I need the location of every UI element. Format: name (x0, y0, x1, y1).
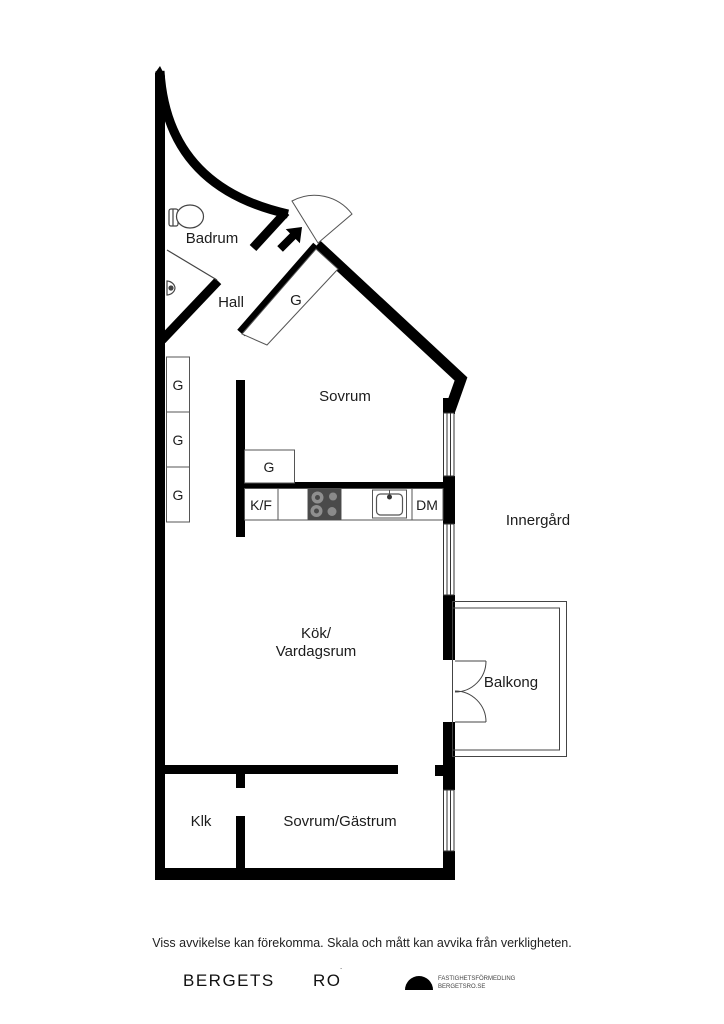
entrance-door-swing (292, 195, 352, 243)
label-closet-1: G (173, 377, 184, 393)
dome-logo-icon (405, 976, 433, 990)
bathroom-door-leaf (167, 250, 217, 280)
footer: Viss avvikelse kan förekomma. Skala och … (152, 936, 571, 990)
brand-mark: ˙ (340, 967, 343, 977)
klk-partition-upper (236, 774, 245, 788)
sink-unit-icon (373, 490, 407, 518)
guestroom-top-wall (160, 765, 398, 774)
label-closet-2: G (173, 432, 184, 448)
stove-icon (308, 489, 341, 521)
brand-ro: RO (313, 971, 342, 990)
label-sovrum: Sovrum (319, 388, 371, 405)
curved-wall (160, 71, 288, 214)
toilet-icon (169, 205, 204, 228)
label-hall-closet: G (290, 292, 302, 309)
kitchen-side-wall (236, 380, 245, 537)
sink-icon (167, 281, 175, 295)
label-hall: Hall (218, 294, 244, 311)
window-sovrum (444, 413, 455, 476)
logo-text-2: BERGETSRO.SE (438, 984, 485, 990)
closets (167, 249, 339, 522)
exterior-walls (155, 66, 461, 880)
label-kitchen-living-2: Vardagsrum (276, 643, 357, 660)
floorplan-drawing: Badrum Hall G Sovrum G G G G K/F DM Inne… (0, 0, 724, 1024)
balcony-french-doors (455, 661, 486, 722)
label-closet-3: G (173, 487, 184, 503)
label-courtyard: Innergård (506, 512, 570, 529)
bathroom-fixtures (167, 205, 217, 295)
label-walkin-closet: Klk (191, 813, 212, 830)
disclaimer-text: Viss avvikelse kan förekomma. Skala och … (152, 936, 571, 950)
window-guestroom (444, 790, 455, 851)
label-kitchen-closet: G (264, 459, 275, 475)
label-guest-room: Sovrum/Gästrum (283, 813, 396, 830)
kitchen-counter (245, 489, 444, 521)
bottom-wall (155, 868, 455, 880)
label-fridge-freezer: K/F (250, 497, 272, 513)
klk-partition-lower (236, 816, 245, 868)
window-kitchen (444, 524, 455, 595)
label-kitchen-living-1: Kök/ (301, 625, 332, 642)
diagonal-outer-wall (317, 245, 461, 410)
brand-bergets: BERGETS (183, 971, 275, 990)
label-badrum: Badrum (186, 230, 239, 247)
floorplan-page: Badrum Hall G Sovrum G G G G K/F DM Inne… (0, 0, 724, 1024)
left-wall (155, 66, 165, 880)
label-dishwasher: DM (416, 497, 438, 513)
logo-text-1: FASTIGHETSFÖRMEDLING (438, 975, 516, 982)
label-balcony: Balkong (484, 674, 538, 691)
